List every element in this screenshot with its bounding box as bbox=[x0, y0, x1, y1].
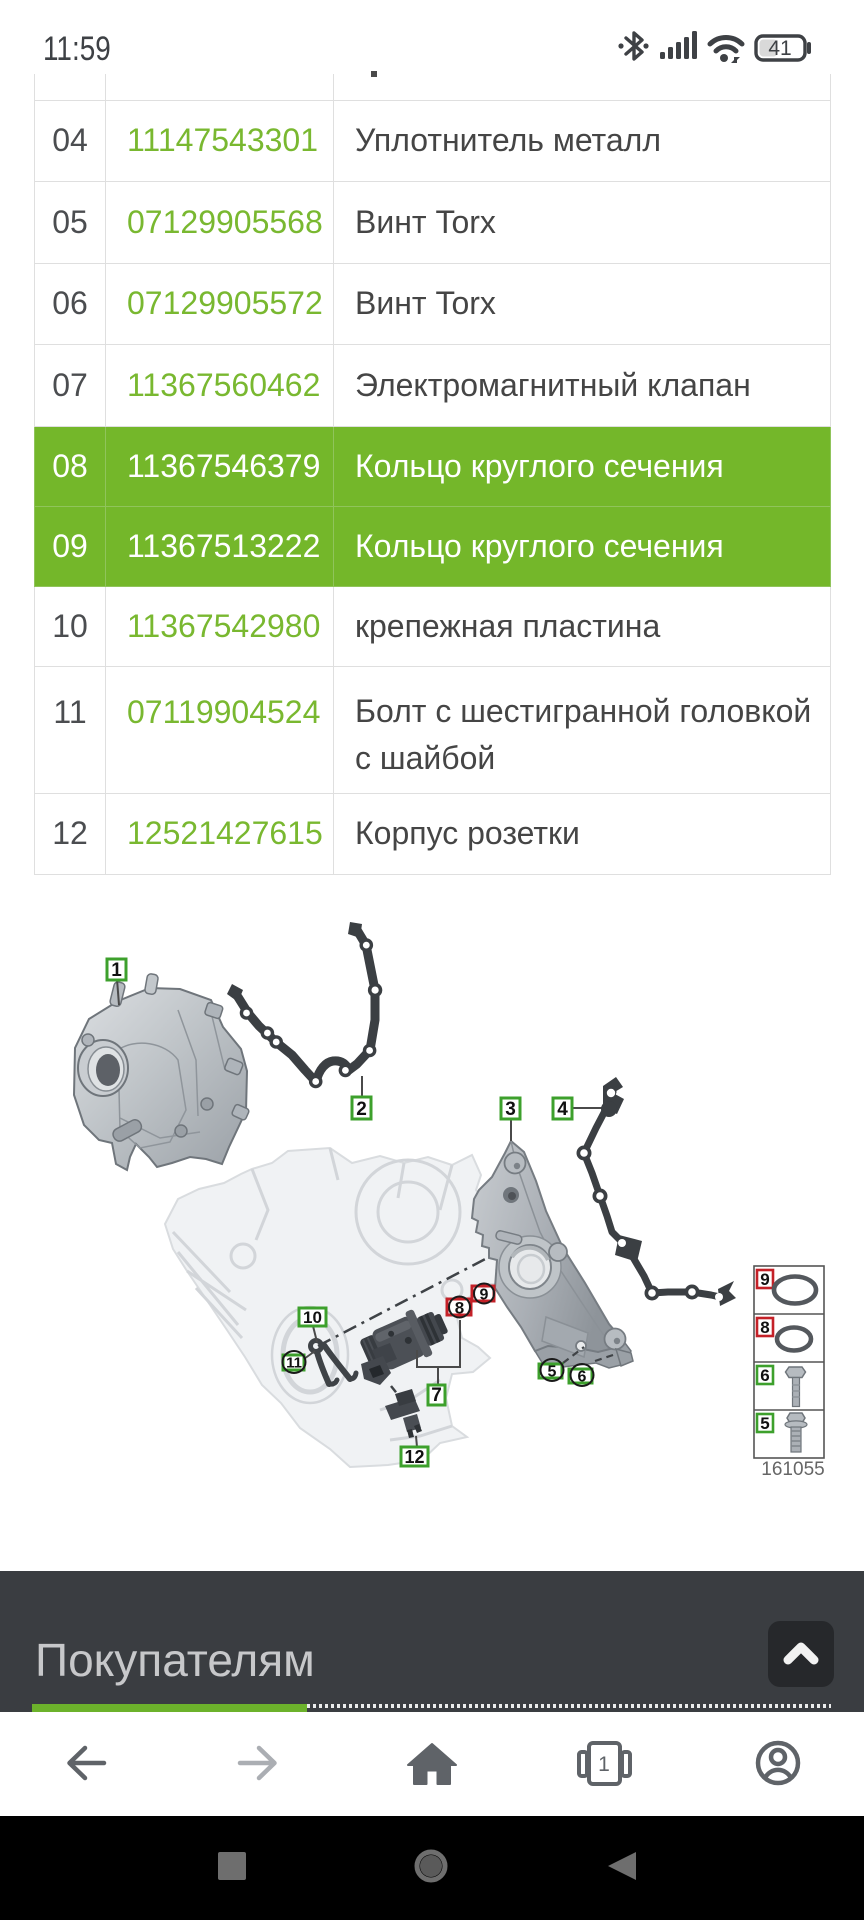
svg-text:6: 6 bbox=[760, 1366, 769, 1385]
svg-text:161055: 161055 bbox=[761, 1459, 824, 1480]
svg-text:1: 1 bbox=[111, 960, 122, 981]
svg-text:4: 4 bbox=[557, 1099, 568, 1120]
svg-text:6: 6 bbox=[578, 1369, 587, 1386]
svg-text:5: 5 bbox=[548, 1364, 557, 1381]
svg-text:12: 12 bbox=[404, 1447, 424, 1467]
svg-text:5: 5 bbox=[760, 1414, 769, 1433]
svg-text:2: 2 bbox=[356, 1099, 367, 1120]
svg-text:11: 11 bbox=[286, 1355, 302, 1372]
svg-text:41: 41 bbox=[768, 37, 791, 60]
svg-text:9: 9 bbox=[480, 1287, 489, 1304]
svg-text:8: 8 bbox=[760, 1318, 769, 1337]
svg-text:8: 8 bbox=[455, 1299, 464, 1318]
svg-text:1: 1 bbox=[598, 1753, 610, 1776]
svg-text:10: 10 bbox=[303, 1308, 322, 1327]
svg-text:9: 9 bbox=[760, 1270, 769, 1289]
svg-text:3: 3 bbox=[505, 1099, 516, 1120]
svg-text:7: 7 bbox=[431, 1385, 442, 1406]
